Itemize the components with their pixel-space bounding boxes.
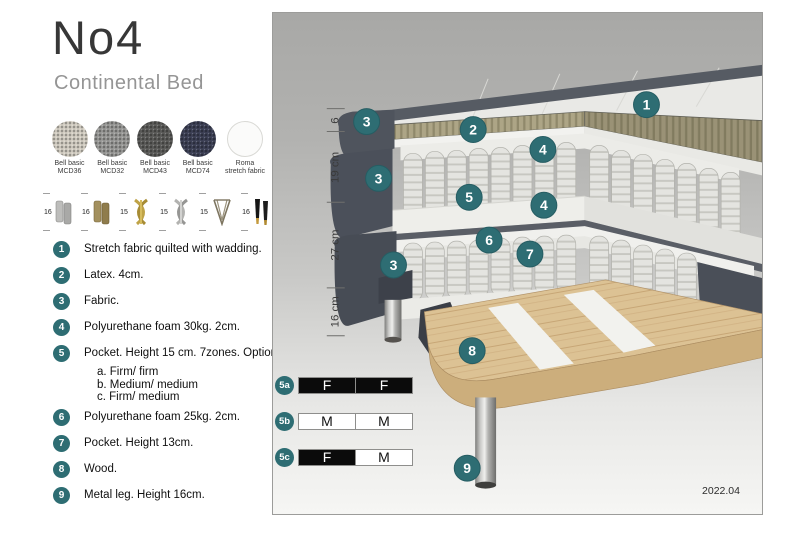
leg-icon-cylinder-silver [54, 198, 74, 226]
pocket-options: a. Firm/ firm b. Medium/ medium c. Firm/… [97, 366, 268, 404]
fabric-swatch-label: Bell basicMCD32 [92, 160, 133, 176]
callout-8: 8 [459, 338, 485, 364]
leg-height-label: 15 [200, 209, 208, 216]
fabric-swatch: Romastretch fabric [220, 121, 270, 176]
leg-height-label: 16 [242, 209, 250, 216]
part-description: Polyurethane foam 30kg. 2cm. [84, 319, 240, 336]
part-item: 4 Polyurethane foam 30kg. 2cm. [53, 319, 268, 336]
part-number-badge: 5 [53, 345, 70, 362]
part-number-badge: 7 [53, 435, 70, 452]
firmness-cell: F [355, 378, 412, 393]
svg-text:3: 3 [363, 114, 371, 130]
leg-option: 15 [200, 193, 234, 231]
firmness-cell: F [299, 378, 355, 393]
version-label: 2022.04 [702, 485, 740, 497]
part-item: 7 Pocket. Height 13cm. [53, 435, 268, 452]
product-title: No4 [52, 14, 144, 61]
fabric-swatch-image [94, 121, 130, 157]
parts-list: 1 Stretch fabric quilted with wadding. 2… [53, 241, 268, 513]
leg-height-label: 16 [44, 209, 52, 216]
leg-options: 16 16 15 15 [44, 190, 272, 234]
part-number-badge: 9 [53, 487, 70, 504]
svg-text:4: 4 [540, 197, 548, 213]
svg-text:5: 5 [465, 189, 473, 205]
part-number-badge: 6 [53, 409, 70, 426]
part-number-badge: 4 [53, 319, 70, 336]
part-number-badge: 3 [53, 293, 70, 310]
dimension-label: 19 cm [330, 152, 342, 183]
part-item: 3 Fabric. [53, 293, 268, 310]
callout-3-middle: 3 [366, 165, 392, 191]
part-item: 6 Polyurethane foam 25kg. 2cm. [53, 409, 268, 426]
dimension-label: 6 [330, 117, 342, 123]
part-item: 8 Wood. [53, 461, 268, 478]
part-description: Stretch fabric quilted with wadding. [84, 241, 262, 258]
leg-height-label: 16 [82, 209, 90, 216]
callout-2: 2 [460, 117, 486, 143]
firmness-row: 5a F F [275, 376, 413, 395]
leg-icon-cylinder-bronze [92, 198, 112, 226]
firmness-cell: M [299, 414, 355, 429]
part-description: Latex. 4cm. [84, 267, 143, 284]
firmness-bar: F F [298, 377, 413, 394]
svg-text:2: 2 [469, 122, 477, 138]
callout-5: 5 [456, 184, 482, 210]
fabric-swatch-image [137, 121, 173, 157]
product-sheet: No4 Continental Bed Bell basicMCD36 Bell… [0, 0, 800, 533]
pocket-option: c. Firm/ medium [97, 391, 268, 404]
svg-text:3: 3 [375, 170, 383, 186]
product-subtitle: Continental Bed [54, 72, 204, 95]
firmness-row: 5b M M [275, 412, 413, 431]
firmness-bar: F M [298, 449, 413, 466]
svg-text:7: 7 [526, 246, 534, 262]
leg-option: 16 [242, 193, 272, 231]
firmness-label-badge: 5c [275, 448, 294, 467]
fabric-swatch-image [227, 121, 263, 157]
svg-text:9: 9 [463, 460, 471, 476]
back-left-leg [385, 300, 402, 340]
svg-text:8: 8 [468, 343, 476, 359]
pocket-option: b. Medium/ medium [97, 379, 268, 392]
callout-3-top: 3 [354, 109, 380, 135]
part-item: 1 Stretch fabric quilted with wadding. [53, 241, 268, 258]
firmness-bar: M M [298, 413, 413, 430]
firmness-row: 5c F M [275, 448, 413, 467]
part-description: Wood. [84, 461, 117, 478]
fabric-swatch-image [52, 121, 88, 157]
leg-height-label: 15 [120, 209, 128, 216]
svg-text:6: 6 [485, 232, 493, 248]
callout-4-lower: 4 [531, 192, 557, 218]
fabric-swatch: Bell basicMCD36 [49, 121, 90, 176]
diagram-panel: 6 19 cm 27 cm 16 cm 1 2 3 3 3 4 4 5 6 7 … [272, 12, 763, 515]
leg-icon-twist-gold [130, 198, 152, 226]
part-item: 9 Metal leg. Height 16cm. [53, 487, 268, 504]
part-number-badge: 2 [53, 267, 70, 284]
firmness-cell: M [355, 450, 412, 465]
part-item: 5 Pocket. Height 15 cm. 7zones. Option: [53, 345, 268, 362]
callout-4-upper: 4 [530, 137, 556, 163]
leg-icon-tapered-black-gold [252, 198, 272, 226]
fabric-swatch: Bell basicMCD32 [92, 121, 133, 176]
svg-text:4: 4 [539, 141, 547, 157]
svg-text:1: 1 [643, 97, 651, 113]
callout-6: 6 [476, 227, 502, 253]
firmness-cell: F [299, 450, 355, 465]
fabric-swatch-label: Bell basicMCD43 [135, 160, 176, 176]
svg-text:3: 3 [390, 257, 398, 273]
part-number-badge: 8 [53, 461, 70, 478]
leg-icon-hairpin [210, 198, 234, 226]
dimension-label: 27 cm [330, 229, 342, 260]
fabric-swatch: Bell basicMCD74 [177, 121, 218, 176]
part-description: Metal leg. Height 16cm. [84, 487, 205, 504]
part-number-badge: 1 [53, 241, 70, 258]
part-description: Pocket. Height 13cm. [84, 435, 193, 452]
fabric-swatch: Bell basicMCD43 [135, 121, 176, 176]
pocket-option: a. Firm/ firm [97, 366, 268, 379]
firmness-cell: M [355, 414, 412, 429]
fabric-swatch-label: Romastretch fabric [220, 160, 270, 176]
leg-option: 16 [82, 193, 112, 231]
callout-9: 9 [454, 455, 480, 481]
part-description: Polyurethane foam 25kg. 2cm. [84, 409, 240, 426]
callout-3-bottom: 3 [381, 252, 407, 278]
callout-7: 7 [517, 241, 543, 267]
callout-1: 1 [634, 92, 660, 118]
leg-height-label: 15 [160, 209, 168, 216]
leg-option: 15 [160, 193, 192, 231]
fabric-swatch-label: Bell basicMCD74 [177, 160, 218, 176]
fabric-swatch-image [180, 121, 216, 157]
firmness-options: 5a F F 5b M M 5c F M [275, 376, 413, 484]
firmness-label-badge: 5a [275, 376, 294, 395]
fabric-swatch-label: Bell basicMCD36 [49, 160, 90, 176]
part-description: Fabric. [84, 293, 119, 310]
leg-option: 15 [120, 193, 152, 231]
dimension-label: 16 cm [330, 296, 342, 327]
part-item: 2 Latex. 4cm. [53, 267, 268, 284]
leg-icon-twist-silver [170, 198, 192, 226]
firmness-label-badge: 5b [275, 412, 294, 431]
leg-option: 16 [44, 193, 74, 231]
part-description: Pocket. Height 15 cm. 7zones. Option: [84, 345, 280, 362]
fabric-swatches: Bell basicMCD36 Bell basicMCD32 Bell bas… [49, 121, 270, 176]
